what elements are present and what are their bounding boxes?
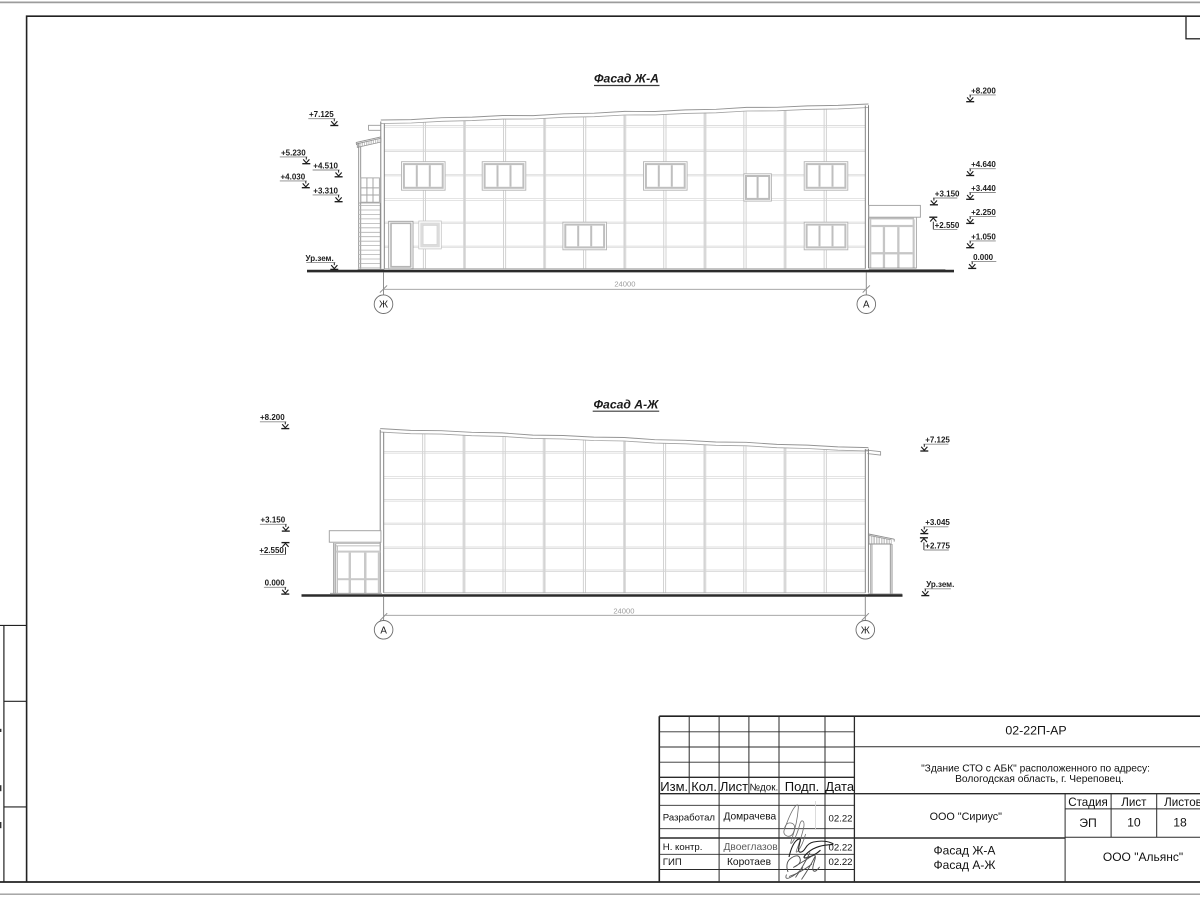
- svg-text:0.000: 0.000: [973, 253, 994, 262]
- svg-text:+3.045: +3.045: [925, 518, 950, 527]
- svg-text:ГИП: ГИП: [663, 857, 682, 868]
- svg-text:+2.550: +2.550: [259, 546, 284, 555]
- svg-text:+4.030: +4.030: [280, 172, 305, 181]
- svg-text:Разработал: Разработал: [663, 812, 715, 823]
- svg-text:Домрачева: Домрачева: [724, 812, 777, 823]
- svg-text:Ур.зем.: Ур.зем.: [926, 580, 954, 589]
- svg-text:+7.125: +7.125: [309, 110, 334, 119]
- svg-text:02.22: 02.22: [829, 813, 853, 824]
- svg-text:Ур.зем.: Ур.зем.: [306, 254, 334, 263]
- svg-text:+3.150: +3.150: [935, 189, 960, 198]
- svg-text:Стадия: Стадия: [1068, 796, 1108, 809]
- svg-text:А: А: [863, 300, 870, 311]
- svg-text:+1.050: +1.050: [971, 232, 996, 241]
- svg-text:24000: 24000: [614, 280, 635, 289]
- svg-text:02-22П-АР: 02-22П-АР: [1005, 724, 1066, 738]
- svg-text:Лист: Лист: [1121, 796, 1147, 809]
- svg-text:А: А: [380, 625, 387, 636]
- svg-text:Кол.: Кол.: [691, 779, 717, 794]
- svg-text:+7.125: +7.125: [925, 436, 950, 445]
- svg-text:+8.200: +8.200: [971, 86, 996, 95]
- svg-text:18: 18: [1173, 815, 1187, 829]
- svg-text:+4.510: +4.510: [313, 161, 338, 170]
- svg-text:02.22: 02.22: [829, 857, 853, 868]
- svg-text:+5.230: +5.230: [281, 148, 306, 157]
- svg-text:Лист: Лист: [720, 779, 748, 794]
- svg-text:24000: 24000: [613, 607, 634, 616]
- svg-text:Фасад Ж-А: Фасад Ж-А: [934, 844, 996, 858]
- svg-text:Коротаев: Коротаев: [727, 857, 771, 868]
- svg-text:+8.200: +8.200: [260, 413, 285, 422]
- svg-text:+2.550: +2.550: [935, 221, 960, 230]
- svg-text:№док.: №док.: [750, 782, 779, 793]
- svg-text:ООО "Сириус": ООО "Сириус": [930, 811, 1003, 823]
- svg-text:Ж: Ж: [379, 300, 388, 311]
- svg-text:Вологодская область, г. Черепо: Вологодская область, г. Череповец.: [955, 773, 1124, 785]
- svg-text:Изм.: Изм.: [660, 779, 688, 794]
- svg-text:"Здание СТО с АБК" расположенн: "Здание СТО с АБК" расположенного по адр…: [921, 764, 1150, 775]
- svg-text:Ж: Ж: [861, 625, 870, 636]
- svg-text:Дата: Дата: [825, 779, 855, 794]
- svg-text:Подп.: Подп.: [785, 779, 820, 794]
- svg-text:Фасад Ж-А: Фасад Ж-А: [594, 72, 659, 86]
- svg-text:ЭП: ЭП: [1079, 816, 1097, 830]
- svg-text:+2.250: +2.250: [971, 208, 996, 217]
- svg-text:Фасад А-Ж: Фасад А-Ж: [594, 397, 660, 411]
- svg-text:Фасад А-Ж: Фасад А-Ж: [934, 858, 996, 872]
- svg-text:Н. контр.: Н. контр.: [663, 842, 703, 853]
- svg-text:10: 10: [1127, 815, 1141, 829]
- svg-text:+4.640: +4.640: [971, 160, 996, 169]
- svg-text:+3.150: +3.150: [260, 516, 285, 525]
- svg-text:+3.440: +3.440: [971, 184, 996, 193]
- svg-text:+2.775: +2.775: [925, 542, 950, 551]
- svg-text:+3.310: +3.310: [313, 186, 338, 195]
- svg-text:0.000: 0.000: [265, 579, 286, 588]
- svg-text:ООО "Альянс": ООО "Альянс": [1103, 850, 1183, 864]
- svg-text:Двоеглазов: Двоеглазов: [724, 842, 778, 853]
- svg-text:Листов: Листов: [1164, 796, 1200, 809]
